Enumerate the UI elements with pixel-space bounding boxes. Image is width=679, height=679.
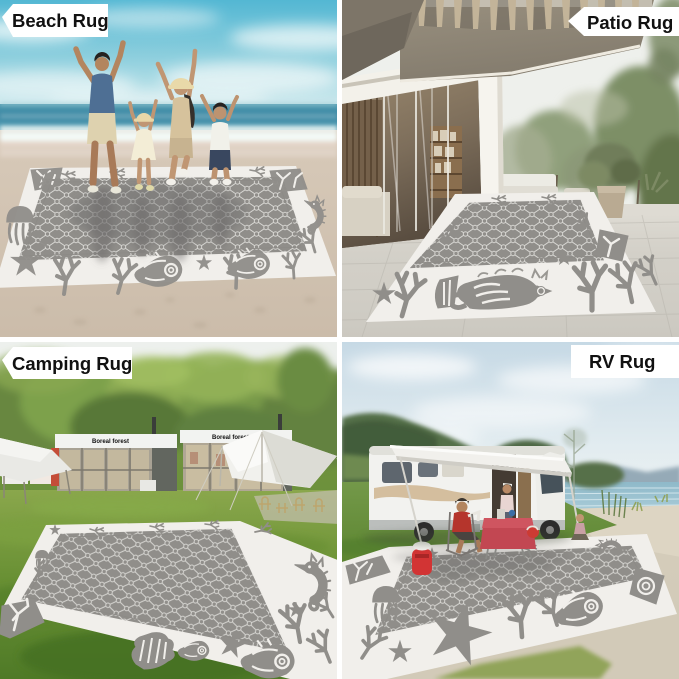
svg-text:Beach Rug: Beach Rug xyxy=(12,10,109,31)
svg-text:Patio Rug: Patio Rug xyxy=(587,12,673,33)
svg-text:Camping Rug: Camping Rug xyxy=(12,353,132,374)
svg-text:RV Rug: RV Rug xyxy=(589,351,655,372)
svg-text:Boreal forest: Boreal forest xyxy=(92,439,129,445)
